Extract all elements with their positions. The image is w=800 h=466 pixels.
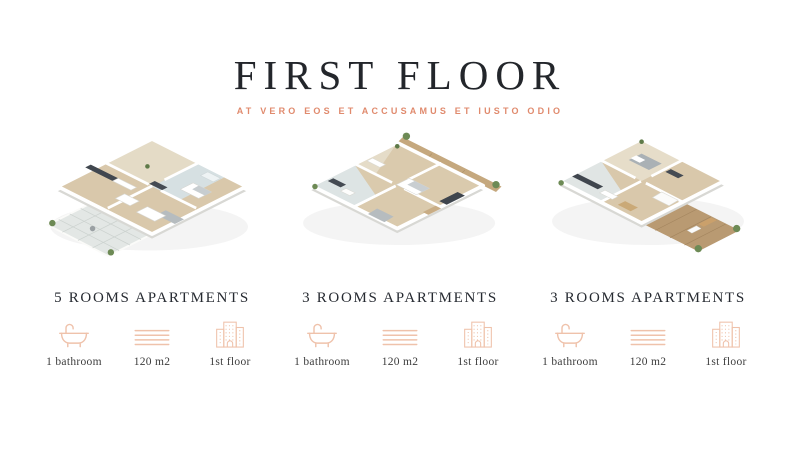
floorplan-svg-3 bbox=[529, 128, 767, 288]
feature-label: 1st floor bbox=[687, 356, 765, 368]
feature-floor: 1st floor bbox=[687, 319, 765, 368]
floorplan-3d-render-2 bbox=[281, 128, 519, 288]
building-icon bbox=[687, 319, 765, 351]
feature-label: 1 bathroom bbox=[35, 356, 113, 368]
feature-list: 1 bathroom 120 m2 bbox=[281, 319, 519, 368]
feature-label: 1st floor bbox=[439, 356, 517, 368]
feature-bathroom: 1 bathroom bbox=[35, 319, 113, 368]
floorplan-3d-render-3 bbox=[529, 128, 767, 288]
feature-floor: 1st floor bbox=[191, 319, 269, 368]
feature-label: 1 bathroom bbox=[283, 356, 361, 368]
feature-label: 120 m2 bbox=[361, 356, 439, 368]
feature-list: 1 bathroom 120 m2 bbox=[529, 319, 767, 368]
apartments-row: 5 ROOMS APARTMENTS 1 bathroom bbox=[0, 128, 800, 368]
apartment-title: 3 ROOMS APARTMENTS bbox=[281, 290, 519, 307]
floorplan-svg-2 bbox=[281, 128, 519, 288]
bathtub-icon bbox=[531, 319, 609, 351]
apartment-card-1: 5 ROOMS APARTMENTS 1 bathroom bbox=[33, 128, 271, 368]
feature-label: 1 bathroom bbox=[531, 356, 609, 368]
page-title: FIRST FLOOR bbox=[0, 54, 800, 97]
bathtub-icon bbox=[283, 319, 361, 351]
building-icon bbox=[439, 319, 517, 351]
feature-area: 120 m2 bbox=[609, 319, 687, 368]
apartment-card-2: 3 ROOMS APARTMENTS 1 bathroom bbox=[281, 128, 519, 368]
feature-label: 120 m2 bbox=[609, 356, 687, 368]
feature-area: 120 m2 bbox=[361, 319, 439, 368]
apartment-title: 5 ROOMS APARTMENTS bbox=[33, 290, 271, 307]
apartment-title: 3 ROOMS APARTMENTS bbox=[529, 290, 767, 307]
floorplan-svg-1 bbox=[33, 128, 271, 288]
feature-list: 1 bathroom 120 m2 bbox=[33, 319, 271, 368]
bathtub-icon bbox=[35, 319, 113, 351]
feature-floor: 1st floor bbox=[439, 319, 517, 368]
area-lines-icon bbox=[113, 319, 191, 351]
area-lines-icon bbox=[361, 319, 439, 351]
section-header: FIRST FLOOR AT VERO EOS ET ACCUSAMUS ET … bbox=[0, 0, 800, 116]
feature-label: 120 m2 bbox=[113, 356, 191, 368]
building-icon bbox=[191, 319, 269, 351]
feature-bathroom: 1 bathroom bbox=[531, 319, 609, 368]
area-lines-icon bbox=[609, 319, 687, 351]
feature-label: 1st floor bbox=[191, 356, 269, 368]
apartment-card-3: 3 ROOMS APARTMENTS 1 bathroom bbox=[529, 128, 767, 368]
page-subtitle: AT VERO EOS ET ACCUSAMUS ET IUSTO ODIO bbox=[0, 106, 800, 116]
feature-bathroom: 1 bathroom bbox=[283, 319, 361, 368]
floorplan-3d-render-1 bbox=[33, 128, 271, 288]
first-floor-section: FIRST FLOOR AT VERO EOS ET ACCUSAMUS ET … bbox=[0, 0, 800, 466]
feature-area: 120 m2 bbox=[113, 319, 191, 368]
